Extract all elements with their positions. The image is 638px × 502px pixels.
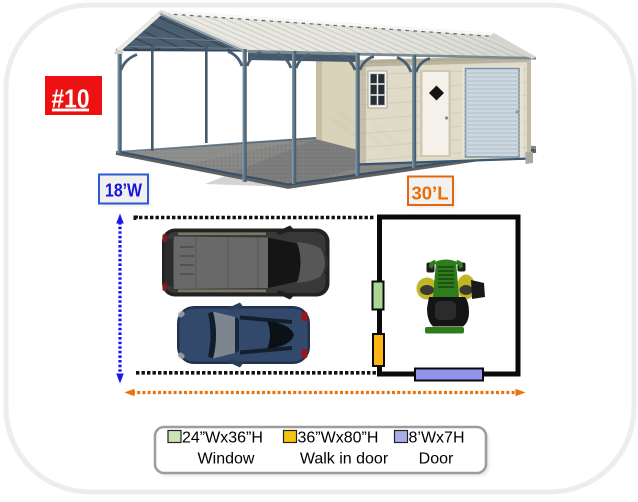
- svg-text:30’L: 30’L: [411, 183, 448, 204]
- svg-text:Walk in door: Walk in door: [300, 451, 389, 468]
- svg-text:Door: Door: [419, 451, 454, 468]
- svg-text:36”Wx80”H: 36”Wx80”H: [298, 430, 379, 447]
- svg-text:Window: Window: [198, 451, 255, 468]
- svg-text:8’Wx7H: 8’Wx7H: [409, 430, 465, 447]
- svg-text:18’W: 18’W: [105, 181, 142, 201]
- svg-text:24”Wx36”H: 24”Wx36”H: [182, 430, 263, 447]
